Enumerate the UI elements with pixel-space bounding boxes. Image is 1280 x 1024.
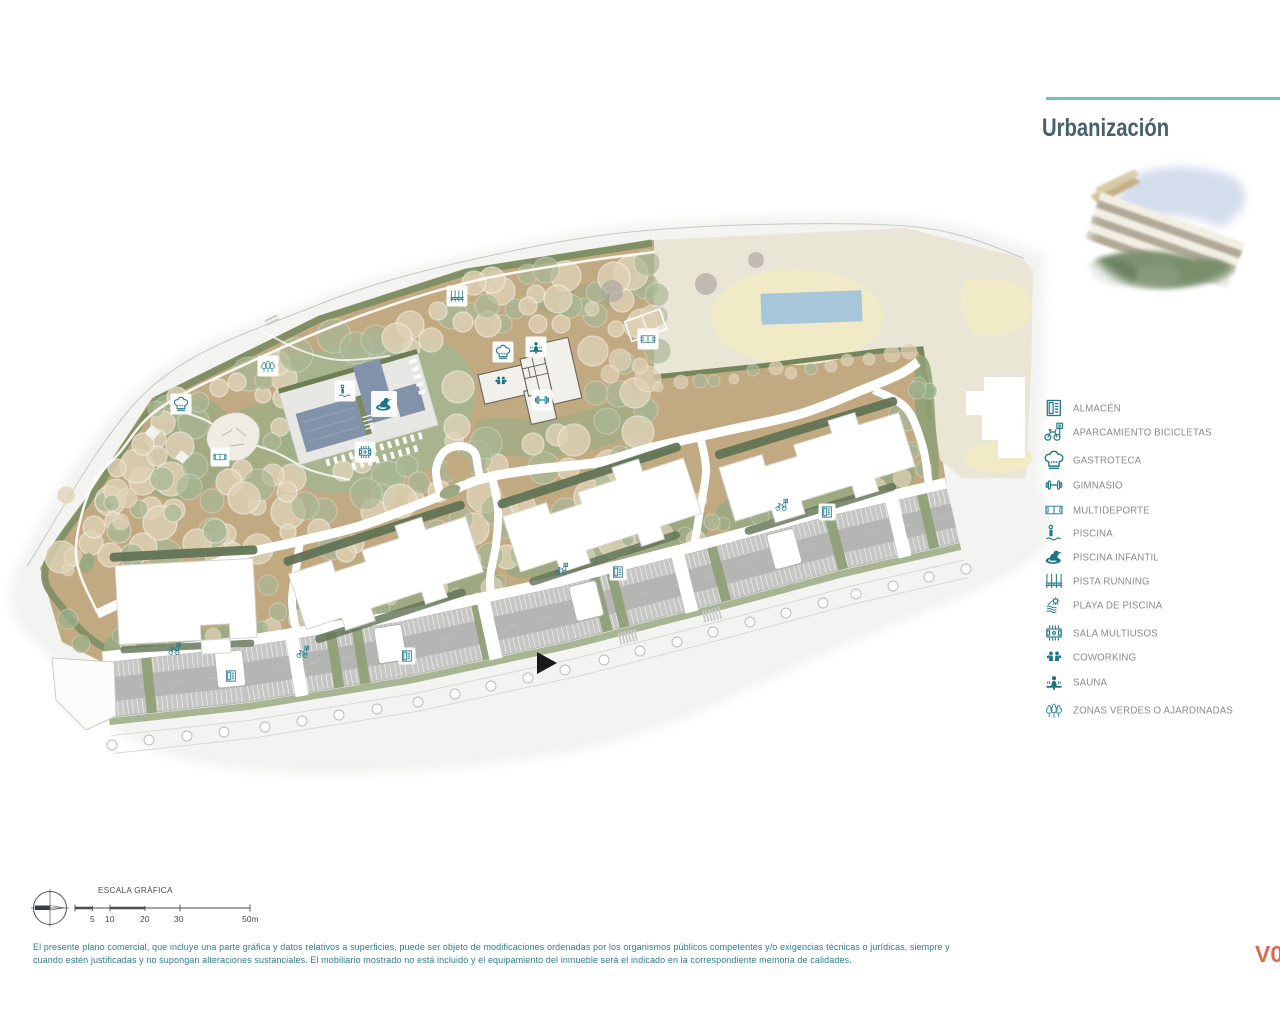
svg-text:SALA MULTIUSOS: SALA MULTIUSOS	[1073, 629, 1158, 640]
svg-text:GASTROTECA: GASTROTECA	[1073, 456, 1142, 467]
svg-text:MULTIDEPORTE: MULTIDEPORTE	[1073, 506, 1150, 517]
svg-text:ESCALA GRÁFICA: ESCALA GRÁFICA	[98, 885, 173, 895]
svg-text:SAUNA: SAUNA	[1073, 678, 1108, 689]
svg-text:ZONAS VERDES O AJARDINADAS: ZONAS VERDES O AJARDINADAS	[1073, 706, 1233, 717]
svg-text:10: 10	[105, 914, 115, 924]
svg-text:GIMNASIO: GIMNASIO	[1073, 481, 1123, 492]
svg-text:5: 5	[90, 914, 95, 924]
svg-text:PLAYA DE PISCINA: PLAYA DE PISCINA	[1073, 601, 1163, 612]
svg-text:20: 20	[140, 914, 150, 924]
svg-text:PISCINA INFANTIL: PISCINA INFANTIL	[1073, 553, 1159, 564]
svg-text:COWORKING: COWORKING	[1073, 653, 1136, 664]
svg-text:30: 30	[174, 914, 184, 924]
svg-text:APARCAMIENTO BICICLETAS: APARCAMIENTO BICICLETAS	[1073, 428, 1212, 439]
svg-text:ALMACÉN: ALMACÉN	[1073, 404, 1121, 415]
svg-text:PISCINA: PISCINA	[1073, 529, 1113, 540]
svg-text:50m: 50m	[242, 914, 259, 924]
svg-text:PISTA RUNNING: PISTA RUNNING	[1073, 577, 1150, 588]
